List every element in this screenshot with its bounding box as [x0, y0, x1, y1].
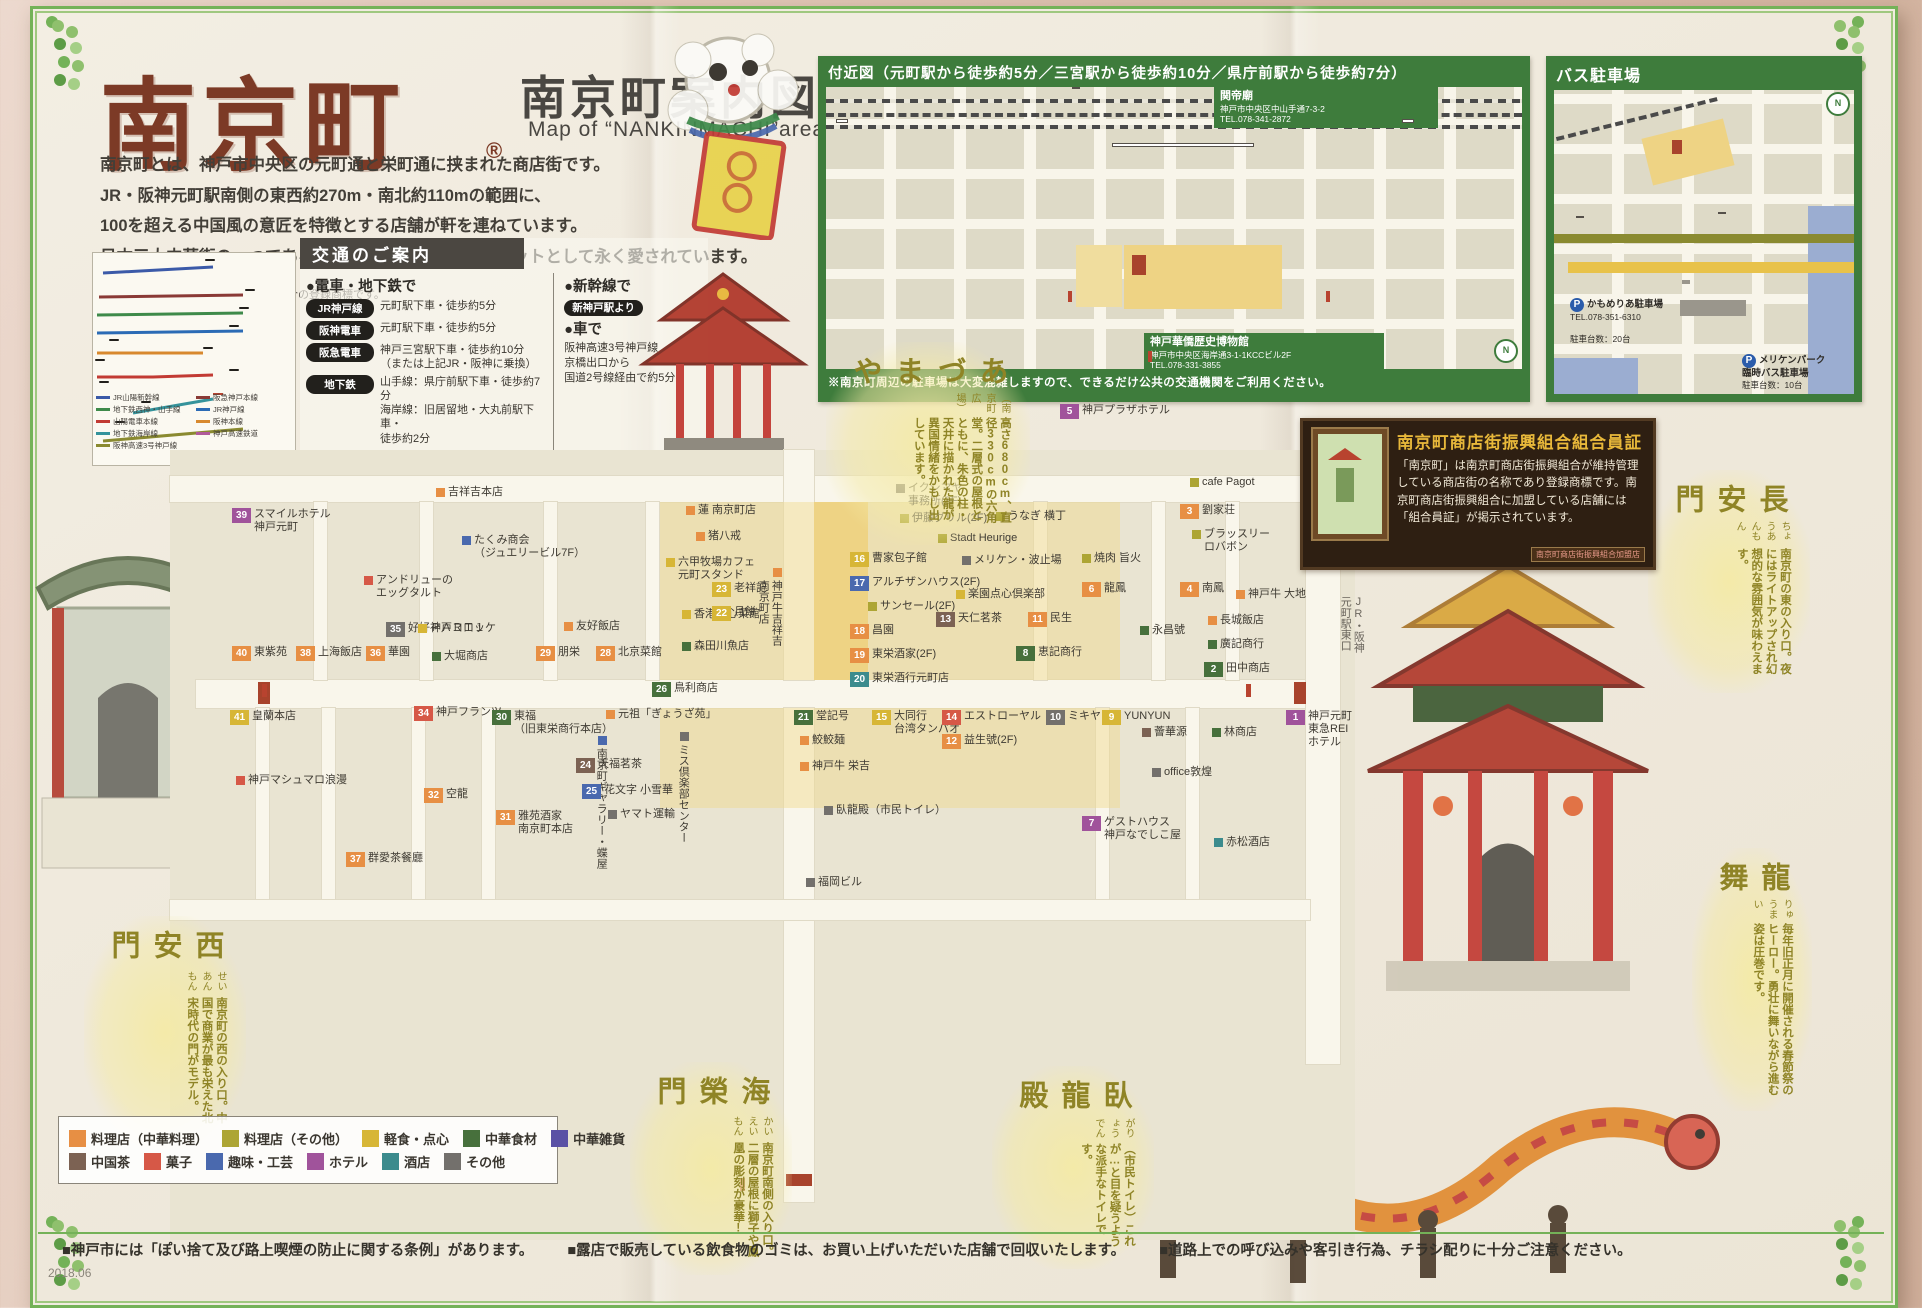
bus-map-label — [1576, 216, 1584, 218]
shop-number-chip: 34 — [414, 706, 433, 721]
shop-number-chip: 5 — [1060, 404, 1079, 419]
shop-name: 楽園点心倶楽部 — [968, 588, 1045, 601]
shop-number-chip: 1 — [1286, 710, 1305, 725]
shop-name: 天仁茗茶 — [958, 612, 1002, 625]
map-point: 6 龍鳳 — [1082, 582, 1126, 597]
line-color-swatch — [96, 396, 110, 399]
shop-number-chip: 4 — [1180, 582, 1199, 597]
map-point: 神戸牛吉祥吉 南京町店 — [756, 566, 782, 646]
shop-name: 臥龍殿（市民トイレ） — [836, 804, 946, 817]
map-point: 伊藤グリル(2F) — [900, 512, 987, 525]
map-point: 大堀商店 — [432, 650, 488, 663]
map-point: イクシマヤ 事務所(3F) — [896, 482, 963, 508]
map-point: 神戸牛 大地 — [1236, 588, 1306, 601]
map-point: 29 朋栄 — [536, 646, 580, 661]
shop-number-chip: 2 — [1204, 662, 1223, 677]
map-point: 12 益生號(2F) — [942, 734, 1017, 749]
train-row: 地下鉄 山手線：県庁前駅下車・徒歩約7分 海岸線：旧居留地・大丸前駅下車・ 徒歩… — [306, 375, 547, 446]
shop-number-chip: 15 — [872, 710, 891, 725]
category-label: 軽食・点心 — [384, 1129, 449, 1148]
rail-legend-label: 地下鉄西神・山手線 — [113, 404, 181, 415]
map-point: 24 天福茗茶 — [576, 758, 642, 773]
map-point: 14 エストローヤル — [942, 710, 1041, 725]
map-point: ヤマト運輸 — [608, 808, 675, 821]
shop-name: 東栄酒行元町店 — [872, 672, 949, 685]
category-color-swatch — [463, 1130, 480, 1147]
shop-name: 廣記商行 — [1220, 638, 1264, 651]
category-legend: 料理店（中華料理） 料理店（その他） 軽食・点心 中華食材 中華雑貨 中国茶 菓… — [58, 1116, 558, 1184]
shop-name: 神戸牛 大地 — [1248, 588, 1306, 601]
vicinity-label — [1066, 291, 1072, 304]
shop-name: 神戸マシュマロ浪漫 — [248, 774, 347, 787]
line-color-swatch — [96, 444, 110, 447]
category-label: 中国茶 — [91, 1152, 130, 1171]
map-point: 森田川魚店 — [682, 640, 749, 653]
category-label: 酒店 — [404, 1152, 430, 1171]
access-text: 元町駅下車・徒歩約5分 — [380, 321, 496, 335]
map-point: 41 皇蘭本店 — [230, 710, 296, 725]
rail-legend-item: JR神戸線 — [196, 404, 292, 415]
kamomeria-capacity: 駐車台数：20台 — [1570, 334, 1663, 345]
vicinity-title: 付近図（元町駅から徒歩約5分／三宮駅から徒歩約10分／県庁前駅から徒歩約7分） — [818, 56, 1530, 87]
rail-legend-item: 地下鉄海岸線 — [96, 428, 192, 439]
legend-item: 料理店（中華料理） — [69, 1129, 208, 1148]
vicinity-map-panel: 付近図（元町駅から徒歩約5分／三宮駅から徒歩約10分／県庁前駅から徒歩約7分） … — [818, 56, 1530, 402]
shop-name: 空龍 — [446, 788, 468, 801]
shop-name: 大堀商店 — [444, 650, 488, 663]
shop-number-chip: 11 — [1028, 612, 1047, 627]
map-point: 赤松酒店 — [1214, 836, 1270, 849]
footer-note: ■露店で販売している飲食物のゴミは、お買い上げいただいた店舗で回収いたします。 — [567, 1239, 1125, 1260]
shop-name: ヤマト運輸 — [620, 808, 675, 821]
legend-item: 中華雑貨 — [551, 1129, 625, 1148]
map-point: メリケン・波止場 — [962, 554, 1062, 567]
temporary-bus-parking: Pメリケンパーク 臨時バス駐車場 駐車台数：10台 — [1742, 342, 1825, 394]
shop-name: メリケン・波止場 — [974, 554, 1062, 567]
shop-number-chip: 32 — [424, 788, 443, 803]
rail-legend-label: 阪急神戸本線 — [213, 392, 258, 403]
map-point: 37 群愛茶餐廳 — [346, 852, 423, 867]
station-pill — [95, 359, 105, 361]
shop-name: 神戸牛吉祥吉 南京町店 — [756, 580, 782, 646]
category-color-swatch — [382, 1153, 399, 1170]
rail-legend-label: 阪神本線 — [213, 416, 243, 427]
shop-name: 東栄酒家(2F) — [872, 648, 936, 661]
category-color-swatch — [551, 1130, 568, 1147]
shop-name: 恵記商行 — [1038, 646, 1082, 659]
rail-legend-item: 神戸高速鉄道 — [196, 428, 292, 439]
vicinity-labels — [826, 87, 1522, 369]
map-point: アンドリューの エッグタルト — [364, 574, 453, 600]
shop-name: 天福茗茶 — [598, 758, 642, 771]
shop-number-chip: 30 — [492, 710, 511, 725]
shop-number-chip: 8 — [1016, 646, 1035, 661]
kamomeria-parking: Pかもめりあ駐車場 TEL.078-351-6310 駐車台数：20台 — [1570, 286, 1663, 357]
map-point: 21 堂記号 — [794, 710, 849, 725]
shop-name: 元祖「ぎょうざ苑」 — [618, 708, 716, 721]
map-point: 20 東栄酒行元町店 — [850, 672, 949, 687]
shop-number-chip: 19 — [850, 648, 869, 663]
shop-name: ミキヤ — [1068, 710, 1101, 723]
rail-legend-item: 阪急神戸本線 — [196, 392, 292, 403]
line-pill: 阪神電車 — [306, 321, 374, 340]
map-point: 焼肉 旨火 — [1082, 552, 1141, 565]
azumaya-pavilion-illustration — [636, 268, 811, 468]
east-gate-painting — [1358, 556, 1658, 1016]
shop-number-chip: 28 — [596, 646, 615, 661]
bus-map-label — [1718, 212, 1726, 214]
map-point: 25 花文字 小雪華 — [582, 784, 673, 799]
map-point: 六甲牧場カフェ 元町スタンド — [666, 556, 755, 582]
shop-number-chip: 3 — [1180, 504, 1199, 519]
rail-legend-label: 神戸高速鉄道 — [213, 428, 258, 439]
shop-name: 蓮 南京町店 — [698, 504, 756, 517]
shop-number-chip: 23 — [712, 582, 731, 597]
train-rows: JR神戸線 元町駅下車・徒歩約5分 阪神電車 元町駅下車・徒歩約5分 阪急電車 … — [306, 299, 547, 446]
legend-item: その他 — [444, 1152, 505, 1171]
legend-row-2: 中国茶 菓子 趣味・工芸 ホテル 酒店 その他 — [69, 1152, 547, 1171]
shop-number-chip: 24 — [576, 758, 595, 773]
bus-map-label — [1682, 280, 1690, 284]
station-pill — [109, 339, 119, 341]
street-label — [740, 1176, 748, 1193]
shop-name: 東福 （旧東栄商行本店） — [514, 710, 613, 736]
map-point: 蓮 南京町店 — [686, 504, 756, 517]
shop-name: たくみ商会 （ジュエリービル7F） — [474, 534, 585, 560]
category-color-swatch — [444, 1153, 461, 1170]
category-color-swatch — [144, 1153, 161, 1170]
shop-number-chip: 10 — [1046, 710, 1065, 725]
map-point: 福岡ビル — [806, 876, 862, 889]
map-point: 22 月餅 — [712, 606, 756, 621]
map-point: ミス倶楽部センター — [676, 730, 689, 843]
shop-number-chip: 40 — [232, 646, 251, 661]
shop-name: 民生 — [1050, 612, 1072, 625]
map-point: 吉祥吉本店 — [436, 486, 503, 499]
shop-name: 伊藤グリル(2F) — [912, 512, 987, 525]
map-point: 8 恵記商行 — [1016, 646, 1082, 661]
map-point: 1 神戸元町 東急REIホテル — [1286, 710, 1355, 750]
map-point: 9 YUNYUN — [1102, 710, 1170, 725]
train-row: 阪神電車 元町駅下車・徒歩約5分 — [306, 321, 547, 340]
footer-note: ■神戸市には「ぽい捨て及び路上喫煙の防止に関する条例」があります。 — [62, 1239, 533, 1260]
map-point: 元祖「ぎょうざ苑」 — [606, 708, 716, 721]
shop-name: ミス倶楽部センター — [676, 744, 689, 843]
vicinity-label — [1146, 351, 1152, 364]
map-point: 永昌號 — [1140, 624, 1185, 637]
station-pill — [229, 369, 239, 371]
shop-number-chip: 35 — [386, 622, 405, 637]
map-point: 神戸コロッケ — [418, 622, 496, 635]
shop-number-chip: 25 — [582, 784, 601, 799]
access-text: 山手線：県庁前駅下車・徒歩約7分 海岸線：旧居留地・大丸前駅下車・ 徒歩約2分 — [380, 375, 547, 446]
station-pill — [203, 347, 213, 349]
shop-name: ゲストハウス 神戸なでしこ屋 — [1104, 816, 1181, 842]
kamomeria-name: かもめりあ駐車場 — [1587, 299, 1663, 310]
map-point: 南京町ギャラリー・蝶屋 — [594, 734, 607, 869]
map-point: 40 東紫苑 — [232, 646, 287, 661]
map-point: JR・阪神 元町駅東口 — [1338, 596, 1364, 653]
line-color-swatch — [196, 432, 210, 435]
shop-number-chip: 9 — [1102, 710, 1121, 725]
station-pill — [245, 289, 255, 291]
map-point: たくみ商会 （ジュエリービル7F） — [462, 534, 585, 560]
map-point: 3 劉家荘 — [1180, 504, 1235, 519]
footer-notes-bar: ■神戸市には「ぽい捨て及び路上喫煙の防止に関する条例」があります。 ■露店で販売… — [38, 1232, 1884, 1264]
map-point: 神戸マシュマロ浪漫 — [236, 774, 347, 787]
shop-name: 林商店 — [1224, 726, 1257, 739]
station-pill — [239, 307, 249, 309]
map-point: 鮫鮫麺 — [800, 734, 845, 747]
shop-name: アンドリューの エッグタルト — [376, 574, 453, 600]
shop-name: 鳥利商店 — [674, 682, 718, 695]
rail-legend-item: JR山陽新幹線 — [96, 392, 192, 403]
shop-name: 六甲牧場カフェ 元町スタンド — [678, 556, 755, 582]
shop-name: 昌園 — [872, 624, 894, 637]
shop-name: 鮫鮫麺 — [812, 734, 845, 747]
corner-flower-decoration — [46, 16, 58, 28]
rail-legend-label: JR山陽新幹線 — [113, 392, 160, 403]
shop-number-chip: 6 — [1082, 582, 1101, 597]
map-point: 7 ゲストハウス 神戸なでしこ屋 — [1082, 816, 1181, 842]
shop-name: office敦煌 — [1164, 766, 1212, 779]
map-point: 38 上海飯店 — [296, 646, 362, 661]
map-point: 5 神戸プラザホテル — [1060, 404, 1170, 419]
legend-item: 料理店（その他） — [222, 1129, 348, 1148]
legend-row-1: 料理店（中華料理） 料理店（その他） 軽食・点心 中華食材 中華雑貨 — [69, 1129, 547, 1148]
membership-panel: 南京町商店街振興組合組合員証 「南京町」は南京町商店街振興組合が維持管理している… — [1300, 418, 1656, 570]
shop-name: 龍鳳 — [1104, 582, 1126, 595]
station-pill — [99, 381, 109, 383]
corner-flower-decoration — [1852, 1216, 1864, 1228]
shop-name: 赤松酒店 — [1226, 836, 1270, 849]
category-label: 菓子 — [166, 1152, 192, 1171]
rail-legend-label: 山陽電車本線 — [113, 416, 158, 427]
map-point: cafe Pagot — [1190, 476, 1255, 489]
shop-name: 森田川魚店 — [694, 640, 749, 653]
category-label: 中華雑貨 — [573, 1129, 625, 1148]
footer-note: ■道路上での呼び込みや客引き行為、チラシ配りに十分ご注意ください。 — [1159, 1239, 1631, 1260]
map-point: 薈華源 — [1142, 726, 1187, 739]
shop-name: 友好飯店 — [576, 620, 620, 633]
shop-name: 神戸コロッケ — [430, 622, 496, 635]
map-point: 31 雅苑酒家 南京町本店 — [496, 810, 573, 836]
shop-number-chip: 17 — [850, 576, 869, 591]
shop-number-chip: 18 — [850, 624, 869, 639]
shop-name: 南鳳 — [1202, 582, 1224, 595]
membership-body: 「南京町」は南京町商店街振興組合が維持管理している商店街の名称であり登録商標です… — [1397, 458, 1643, 527]
shop-number-chip: 39 — [232, 508, 251, 523]
category-color-swatch — [69, 1153, 86, 1170]
map-point: 2 田中商店 — [1204, 662, 1270, 677]
parking-icon: P — [1570, 298, 1584, 312]
category-color-swatch — [307, 1153, 324, 1170]
access-text: 神戸三宮駅下車・徒歩約10分 （または上記JR・阪神に乗換） — [380, 343, 536, 372]
shop-name: イクシマヤ 事務所(3F) — [908, 482, 963, 508]
member-plaque: 南京町商店街振興組合加盟店 — [1531, 547, 1645, 562]
map-point: 19 東栄酒家(2F) — [850, 648, 936, 663]
shop-name: YUNYUN — [1124, 710, 1170, 723]
shop-number-chip: 29 — [536, 646, 555, 661]
legend-item: 菓子 — [144, 1152, 192, 1171]
shop-number-chip: 38 — [296, 646, 315, 661]
vicinity-label — [836, 119, 848, 123]
vicinity-label — [1402, 119, 1414, 123]
vicinity-map: 関帝廟 神戸市中央区中山手通7-3-2 TEL.078-341-2872 神戸華… — [826, 87, 1522, 369]
shop-number-chip: 7 — [1082, 816, 1101, 831]
map-point: 臥龍殿（市民トイレ） — [824, 804, 946, 817]
shop-name: 永昌號 — [1152, 624, 1185, 637]
shop-name: 月餅 — [734, 606, 756, 619]
station-pill — [229, 325, 239, 327]
train-row: JR神戸線 元町駅下車・徒歩約5分 — [306, 299, 547, 318]
line-pill: JR神戸線 — [306, 299, 374, 318]
train-heading: ●電車・地下鉄で — [306, 275, 547, 296]
vicinity-label — [1324, 291, 1330, 304]
map-point: 11 民生 — [1028, 612, 1072, 627]
rail-legend-label: JR神戸線 — [213, 404, 245, 415]
shop-name: 福岡ビル — [818, 876, 862, 889]
temp-lot-capacity: 駐車台数：10台 — [1742, 380, 1825, 391]
shop-name: cafe Pagot — [1202, 476, 1255, 489]
map-point: 36 華園 — [366, 646, 410, 661]
category-label: 料理店（その他） — [244, 1129, 348, 1148]
category-label: 料理店（中華料理） — [91, 1129, 208, 1148]
shop-number-chip: 41 — [230, 710, 249, 725]
legend-item: 中華食材 — [463, 1129, 537, 1148]
shop-name: 劉家荘 — [1202, 504, 1235, 517]
version-date: 2018.06 — [48, 1266, 91, 1280]
rail-legend: JR山陽新幹線 阪急神戸本線 地下鉄西神・山手線 JR神戸線 山陽電車本線 阪神… — [96, 392, 292, 451]
bus-parking-title: バス駐車場 — [1546, 56, 1862, 90]
vicinity-note: ※南京町周辺の駐車場は大変混雑しますので、できるだけ公共の交通機関をご利用くださ… — [818, 369, 1530, 395]
map-point: 長城飯店 — [1208, 614, 1264, 627]
shop-name: エストローヤル — [964, 710, 1041, 723]
rail-legend-label: 地下鉄海岸線 — [113, 428, 158, 439]
shop-name: JR・阪神 元町駅東口 — [1338, 596, 1364, 653]
shop-name: ブラッスリー ロバボン — [1204, 528, 1270, 554]
rail-legend-item: 阪神本線 — [196, 416, 292, 427]
category-label: 趣味・工芸 — [228, 1152, 293, 1171]
line-color-swatch — [196, 420, 210, 423]
category-label: その他 — [466, 1152, 505, 1171]
map-point: 4 南鳳 — [1180, 582, 1224, 597]
access-text: 元町駅下車・徒歩約5分 — [380, 299, 496, 313]
corner-flower-decoration — [46, 1216, 58, 1228]
line-pill: 阪急電車 — [306, 343, 374, 362]
shop-name: 皇蘭本店 — [252, 710, 296, 723]
shop-name: 益生號(2F) — [964, 734, 1017, 747]
map-point: 廣記商行 — [1208, 638, 1264, 651]
shop-name: 華園 — [388, 646, 410, 659]
parking-icon: P — [1742, 354, 1756, 368]
legend-item: 趣味・工芸 — [206, 1152, 293, 1171]
map-point: 楽園点心倶楽部 — [956, 588, 1045, 601]
map-point: 39 スマイルホテル 神戸元町 — [232, 508, 331, 534]
street-label — [262, 682, 270, 699]
map-point: 神戸牛 栄吉 — [800, 760, 870, 773]
shop-number-chip: 36 — [366, 646, 385, 661]
photo-of-pamphlet: { "header":{ "logo":"南京町","registered":"… — [0, 0, 1922, 1307]
lion-dance-illustration — [648, 20, 818, 240]
bus-parking-panel: バス駐車場 N Pかもめりあ駐車場 TEL.078-351-6310 駐車台数：… — [1546, 56, 1862, 402]
train-row: 阪急電車 神戸三宮駅下車・徒歩約10分 （または上記JR・阪神に乗換） — [306, 343, 547, 372]
shop-number-chip: 14 — [942, 710, 961, 725]
category-color-swatch — [69, 1130, 86, 1147]
shop-number-chip: 21 — [794, 710, 813, 725]
shop-name: 堂記号 — [816, 710, 849, 723]
rail-legend-label: 阪神高速3号神戸線 — [113, 440, 177, 451]
legend-item: ホテル — [307, 1152, 368, 1171]
kamomeria-tel: TEL.078-351-6310 — [1570, 312, 1663, 323]
shop-name: 曹家包子館 — [872, 552, 927, 565]
line-color-swatch — [196, 396, 210, 399]
map-point: うなぎ 横丁 — [996, 510, 1066, 523]
map-point: 猪八戒 — [696, 530, 741, 543]
shop-name: 群愛茶餐廳 — [368, 852, 423, 865]
map-point: 26 鳥利商店 — [652, 682, 718, 697]
map-point: ブラッスリー ロバボン — [1192, 528, 1270, 554]
map-point: 林商店 — [1212, 726, 1257, 739]
shinkobe-pill: 新神戸駅より — [564, 300, 643, 316]
shop-name: 上海飯店 — [318, 646, 362, 659]
shop-name: 神戸牛 栄吉 — [812, 760, 870, 773]
map-point: 16 曹家包子館 — [850, 552, 927, 567]
map-point: 18 昌園 — [850, 624, 894, 639]
map-point: 30 東福 （旧東栄商行本店） — [492, 710, 613, 736]
rail-legend-item: 地下鉄西神・山手線 — [96, 404, 192, 415]
shop-name: 北京菜館 — [618, 646, 662, 659]
transport-guide-title: 交通のご案内 — [300, 238, 524, 269]
shop-number-chip: 37 — [346, 852, 365, 867]
shop-name: 朋栄 — [558, 646, 580, 659]
shop-name: 薈華源 — [1154, 726, 1187, 739]
vicinity-label — [1072, 87, 1080, 89]
map-point: 34 神戸フランツ — [414, 706, 502, 721]
corner-flower-decoration — [1852, 16, 1864, 28]
map-point: office敦煌 — [1152, 766, 1212, 779]
shop-number-chip: 13 — [936, 612, 955, 627]
shop-name: 吉祥吉本店 — [448, 486, 503, 499]
map-point: 32 空龍 — [424, 788, 468, 803]
shop-name: 神戸プラザホテル — [1082, 404, 1170, 417]
category-color-swatch — [222, 1130, 239, 1147]
category-label: ホテル — [329, 1152, 368, 1171]
shop-name: 田中商店 — [1226, 662, 1270, 675]
category-label: 中華食材 — [485, 1129, 537, 1148]
legend-item: 酒店 — [382, 1152, 430, 1171]
category-color-swatch — [362, 1130, 379, 1147]
line-color-swatch — [96, 408, 110, 411]
shop-name: 東紫苑 — [254, 646, 287, 659]
shop-number-chip: 31 — [496, 810, 515, 825]
rail-legend-item: 山陽電車本線 — [96, 416, 192, 427]
line-color-swatch — [96, 432, 110, 435]
map-point: 友好飯店 — [564, 620, 620, 633]
shop-number-chip: 22 — [712, 606, 731, 621]
legend-item: 中国茶 — [69, 1152, 130, 1171]
shop-name: Stadt Heurige — [950, 532, 1017, 545]
shop-name: 長城飯店 — [1220, 614, 1264, 627]
shop-name: 神戸元町 東急REIホテル — [1308, 710, 1355, 750]
map-point: 10 ミキヤ — [1046, 710, 1101, 725]
legend-item: 軽食・点心 — [362, 1129, 449, 1148]
category-color-swatch — [206, 1153, 223, 1170]
line-color-swatch — [96, 420, 110, 423]
shop-name: 花文字 小雪華 — [604, 784, 673, 797]
line-pill: 地下鉄 — [306, 375, 374, 394]
shop-name: 雅苑酒家 南京町本店 — [518, 810, 573, 836]
